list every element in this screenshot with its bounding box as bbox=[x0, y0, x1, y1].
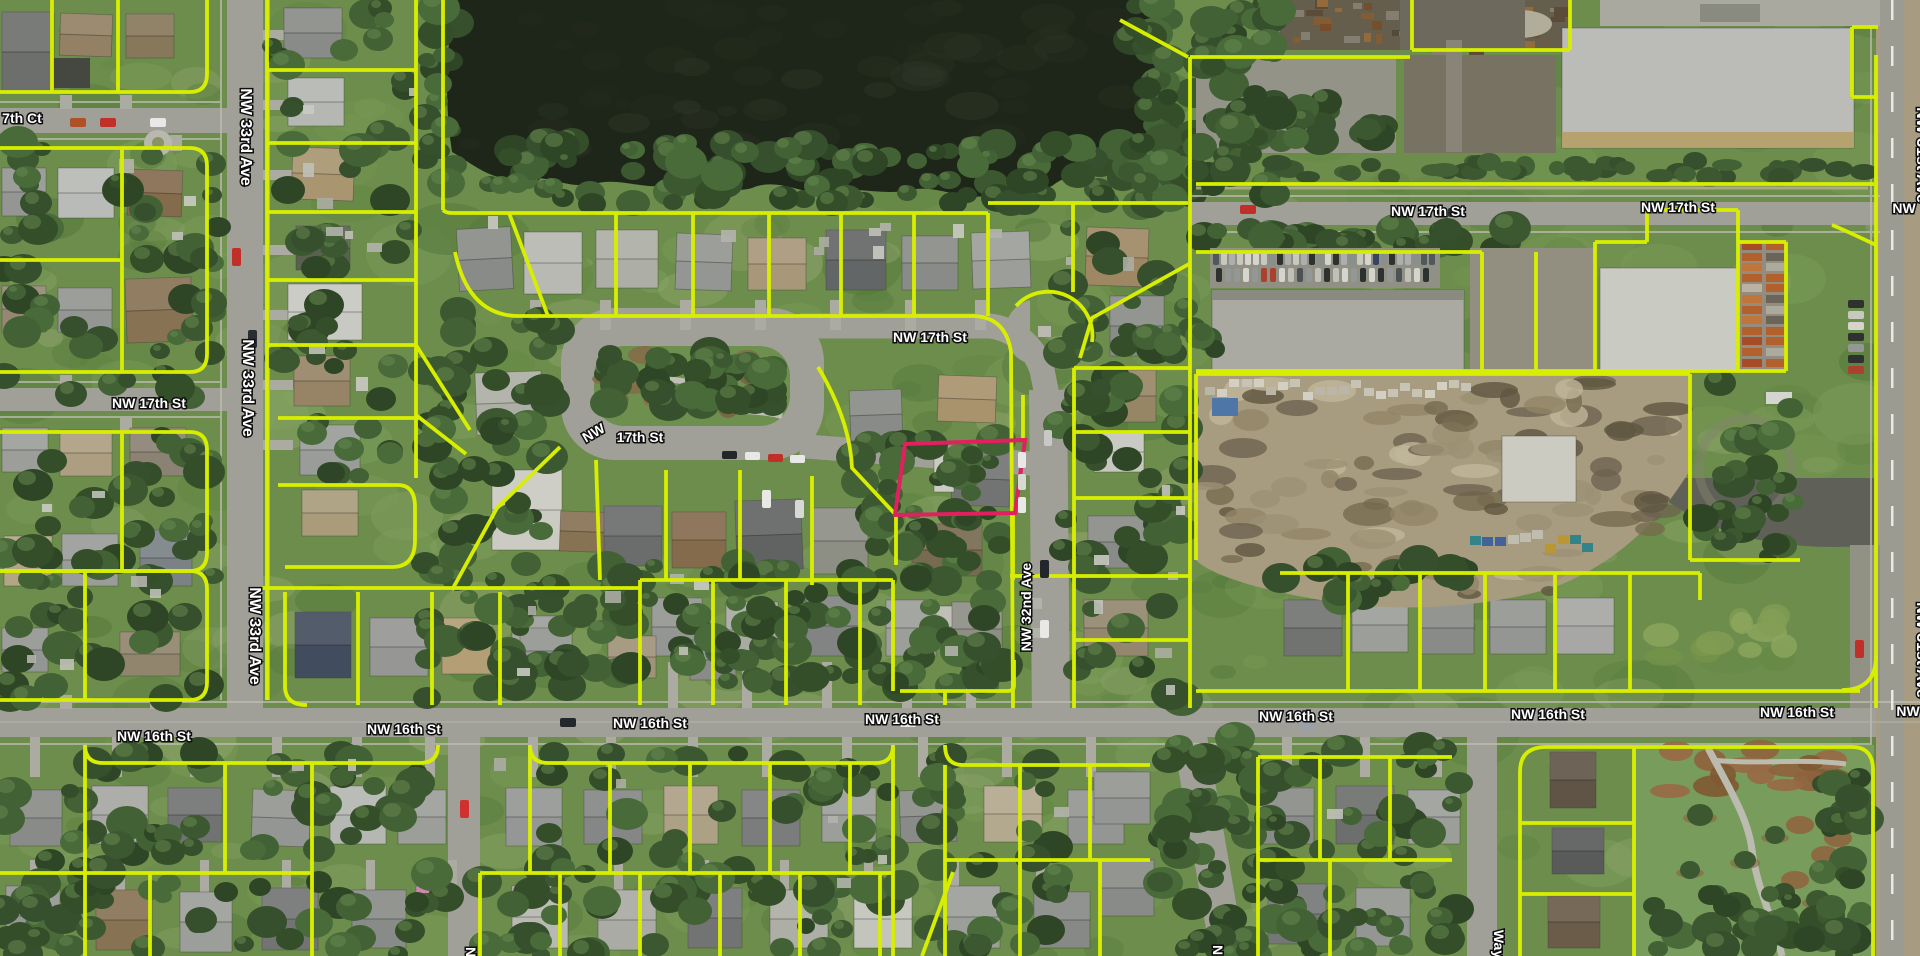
svg-text:NW 16th St: NW 16th St bbox=[117, 728, 191, 744]
svg-text:NW 17th St: NW 17th St bbox=[112, 395, 186, 411]
svg-text:NW 17th St: NW 17th St bbox=[893, 329, 967, 345]
svg-text:NW 32nd Ave: NW 32nd Ave bbox=[1018, 563, 1034, 652]
svg-text:NW 31st Ave: NW 31st Ave bbox=[1913, 107, 1920, 203]
svg-text:7th Ct: 7th Ct bbox=[2, 110, 42, 126]
svg-text:17th St: 17th St bbox=[617, 429, 664, 445]
svg-text:NW: NW bbox=[1896, 703, 1920, 719]
svg-text:NW 33rd Ave: NW 33rd Ave bbox=[239, 339, 256, 437]
svg-text:NW 16th St: NW 16th St bbox=[1511, 706, 1585, 722]
svg-text:NW 33rd Ave: NW 33rd Ave bbox=[246, 587, 263, 685]
svg-text:NW 16th St: NW 16th St bbox=[865, 711, 939, 727]
svg-text:Way: Way bbox=[1491, 930, 1507, 956]
svg-text:NW 33rd Ave: NW 33rd Ave bbox=[237, 88, 254, 186]
svg-text:NW 16th St: NW 16th St bbox=[367, 721, 441, 737]
svg-text:N: N bbox=[463, 947, 479, 956]
svg-text:NW 16th St: NW 16th St bbox=[1760, 704, 1834, 720]
svg-text:NW 16th St: NW 16th St bbox=[613, 715, 687, 731]
svg-text:NW 17th St: NW 17th St bbox=[1391, 203, 1465, 219]
svg-text:NW: NW bbox=[1892, 200, 1916, 216]
svg-text:NW 16th St: NW 16th St bbox=[1259, 708, 1333, 724]
svg-text:NW 17th St: NW 17th St bbox=[1641, 199, 1715, 215]
svg-text:N: N bbox=[1210, 945, 1226, 955]
svg-text:NW 31st Ave: NW 31st Ave bbox=[1913, 602, 1920, 698]
